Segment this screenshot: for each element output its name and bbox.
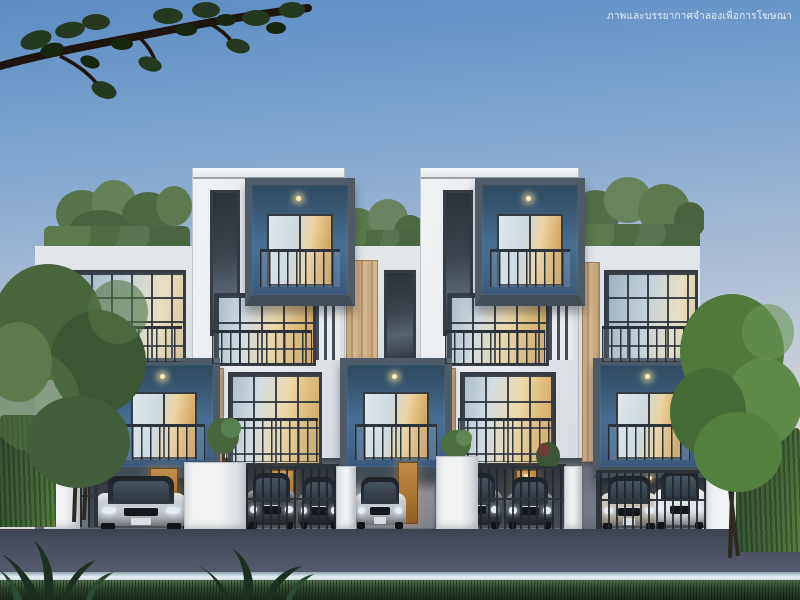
tower-a-mid-railing — [212, 330, 312, 364]
unit1-mid-railing — [66, 326, 182, 362]
balcony-railing — [355, 424, 437, 460]
balcony-ceiling-light — [392, 374, 397, 379]
grass-strip — [0, 580, 800, 600]
balcony-ceiling-light — [526, 196, 531, 201]
balcony-ceiling-light — [160, 374, 165, 379]
balcony-ceiling-light — [296, 196, 301, 201]
car-wheel — [395, 522, 403, 529]
car-grille — [124, 507, 158, 516]
car-windshield — [108, 476, 175, 504]
balcony-railing — [608, 424, 690, 460]
balcony-ceiling-light — [645, 374, 650, 379]
balcony-box-top-tower-a — [245, 178, 355, 306]
road — [0, 529, 800, 576]
balcony-box-mid-unit5 — [593, 358, 705, 478]
left-hedge — [0, 415, 56, 527]
car-silver-sedan-2 — [354, 477, 406, 529]
balcony-box-top-tower-b — [475, 178, 585, 306]
fence-pillar-1 — [336, 466, 356, 534]
architectural-rendering: ภาพและบรรยากาศจำลองเพื่อการโฆษณา — [0, 0, 800, 600]
balcony-box-mid-unit1 — [108, 358, 220, 478]
car-silver-sedan-1 — [96, 476, 186, 530]
car-windshield — [361, 477, 399, 504]
balcony-railing — [260, 249, 341, 287]
mid-section-narrow-window — [384, 270, 416, 364]
planter-wall — [436, 456, 478, 534]
privacy-wall-unit1 — [184, 462, 246, 534]
car-wheel — [357, 522, 365, 529]
car-license-plate — [374, 517, 385, 524]
fence-pillar-2 — [564, 466, 582, 534]
tower-b-mid-railing — [445, 330, 545, 364]
carport-gate-unit2 — [242, 466, 348, 531]
right-hedge-wall — [736, 428, 800, 552]
car-headlight — [166, 507, 180, 514]
balcony-railing — [490, 249, 571, 287]
car-grille — [370, 506, 390, 515]
carport-gate-unit5 — [596, 470, 716, 529]
car-headlight — [102, 507, 116, 514]
car-license-plate — [131, 518, 151, 525]
balcony-railing — [123, 424, 205, 460]
tower-a-lower-railing — [226, 418, 318, 462]
unit5-mid-railing — [602, 326, 694, 362]
thai-advertising-disclaimer: ภาพและบรรยากาศจำลองเพื่อการโฆษณา — [607, 9, 792, 24]
